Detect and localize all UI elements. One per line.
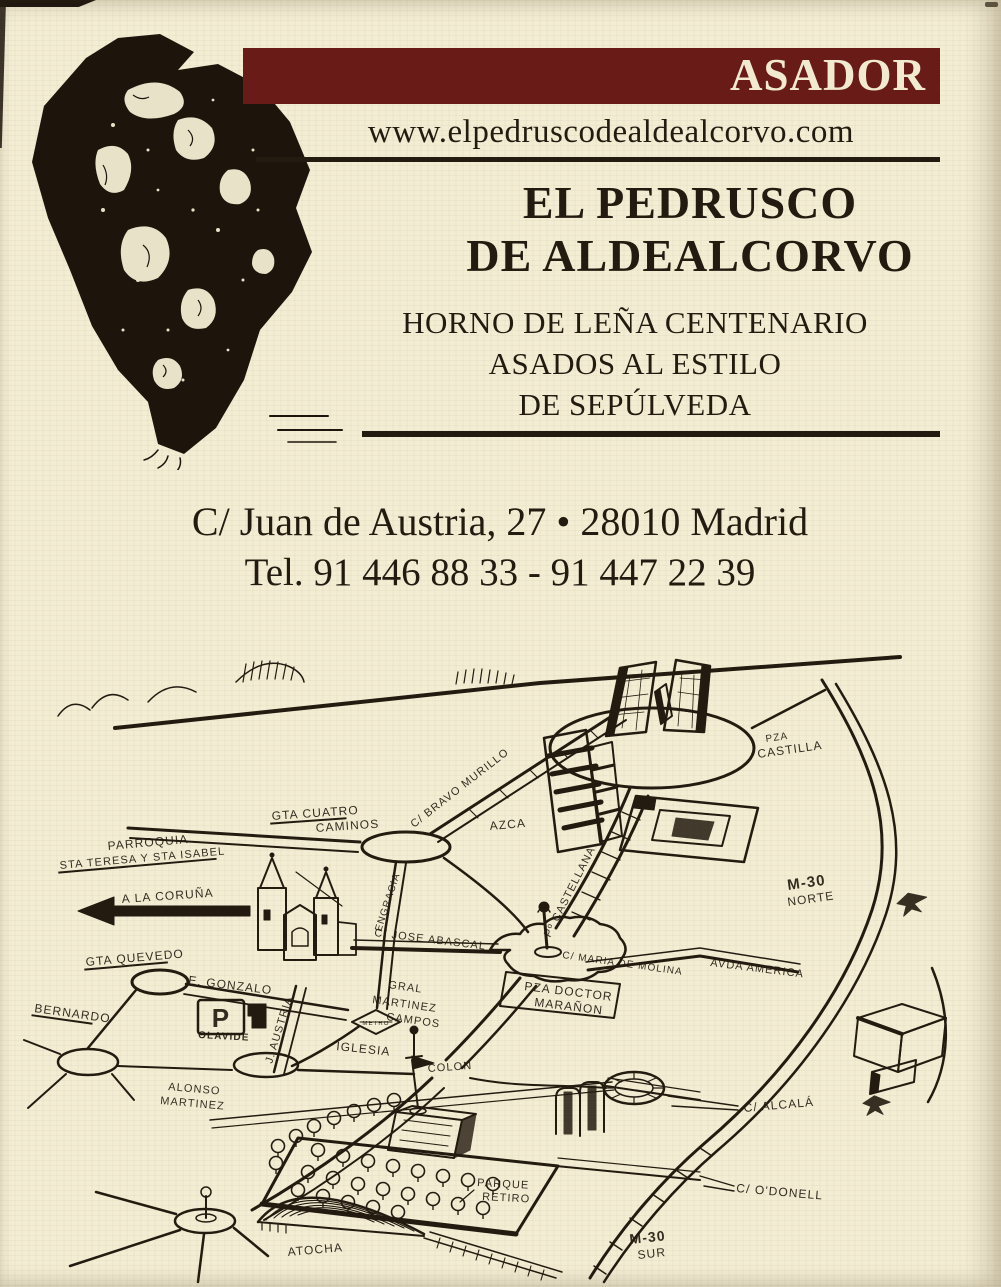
asador-banner: ASADOR bbox=[243, 48, 940, 104]
scan-edge-artifact bbox=[0, 0, 96, 7]
map-label-m30-sur-2: SUR bbox=[637, 1245, 667, 1262]
tagline-line2: ASADOS AL ESTILO bbox=[365, 343, 905, 384]
airplane-icon bbox=[895, 888, 931, 919]
scan-edge-artifact bbox=[0, 0, 6, 148]
parroquia-church-sketch bbox=[258, 853, 356, 960]
tagline-line1: HORNO DE LEÑA CENTENARIO bbox=[365, 302, 905, 343]
map-label-po-castellana: Pº CASTELLANA bbox=[542, 845, 598, 940]
map-label-c-odonell: C/ O'DONELL bbox=[736, 1181, 824, 1203]
parking-badge-letter: P bbox=[212, 1003, 230, 1033]
olavide-parking bbox=[198, 1000, 266, 1034]
map-label-colon: COLON bbox=[427, 1060, 472, 1075]
divider-line-top bbox=[256, 157, 940, 162]
restaurant-name-line1: EL PEDRUSCO bbox=[420, 176, 960, 229]
map-label-parque-retiro-2: RETIRO bbox=[482, 1191, 531, 1206]
map-label-e-gonzalo: E. GONZALO bbox=[188, 973, 273, 997]
map-label-iglesia: IGLESIA bbox=[336, 1039, 392, 1059]
map-label-azca: AZCA bbox=[489, 816, 526, 833]
banner-label: ASADOR bbox=[730, 50, 926, 100]
map-label-olavide: OLAVIDE bbox=[198, 1030, 250, 1044]
east-building-sketch bbox=[854, 1004, 946, 1094]
map-label-atocha: ATOCHA bbox=[287, 1240, 344, 1259]
map-label-a-la-coruna: A LA CORUÑA bbox=[121, 886, 214, 906]
airplane-icon bbox=[862, 1093, 892, 1117]
business-card-scan: ASADOR www.elpedruscodealdealcorvo.com E… bbox=[0, 0, 1001, 1287]
map-label-parque-retiro-1: PARQUE bbox=[477, 1177, 530, 1192]
map-label-avda-america: AVDA AMERICA bbox=[710, 957, 805, 980]
map-label-gral: GRAL bbox=[388, 979, 424, 996]
hand-drawn-map: P METRO GTA CUATROCAMINOSC/ BRAVO MURILL… bbox=[0, 620, 1001, 1287]
tagline-line3: DE SEPÚLVEDA bbox=[365, 384, 905, 425]
map-label-alonso-martinez-2: MARTINEZ bbox=[160, 1095, 226, 1113]
scan-edge-artifact bbox=[985, 2, 998, 7]
map-label-bernardo: BERNARDO bbox=[34, 1001, 112, 1026]
map-label-alonso-martinez-1: ALONSO bbox=[168, 1081, 221, 1098]
restaurant-tagline: HORNO DE LEÑA CENTENARIO ASADOS AL ESTIL… bbox=[365, 302, 905, 425]
restaurant-name: EL PEDRUSCO DE ALDEALCORVO bbox=[420, 176, 960, 282]
website-url: www.elpedruscodealdealcorvo.com bbox=[266, 114, 956, 151]
stepped-building-sketch bbox=[620, 796, 758, 862]
divider-line-bottom bbox=[362, 431, 940, 437]
street-address: C/ Juan de Austria, 27 • 28010 Madrid bbox=[60, 498, 940, 545]
map-label-c-maria-de-molina: C/ MARIA DE MOLINA bbox=[562, 950, 684, 978]
restaurant-name-line2: DE ALDEALCORVO bbox=[420, 229, 960, 282]
map-label-m30-sur-1: M-30 bbox=[629, 1227, 667, 1247]
map-label-engracia: ENGRACIA bbox=[373, 871, 402, 932]
phone-numbers: Tel. 91 446 88 33 - 91 447 22 39 bbox=[60, 550, 940, 595]
